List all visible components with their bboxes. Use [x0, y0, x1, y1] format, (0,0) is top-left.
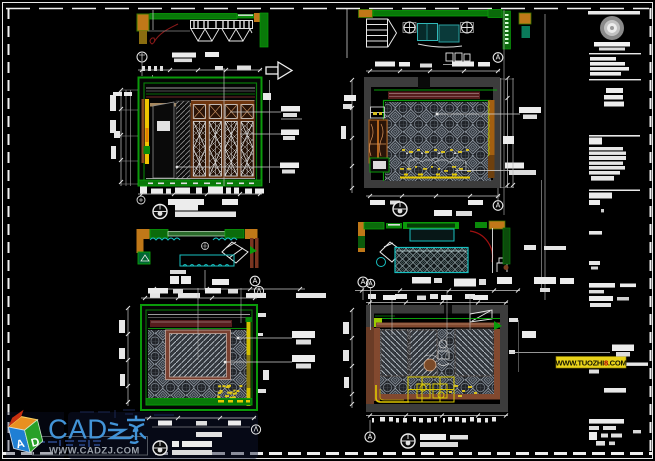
svg-text:CAD: CAD	[48, 414, 108, 445]
svg-text:WWW.CADZJ.COM: WWW.CADZJ.COM	[49, 446, 140, 457]
svg-text:WWW.TUOZHI8.COM: WWW.TUOZHI8.COM	[555, 359, 626, 368]
